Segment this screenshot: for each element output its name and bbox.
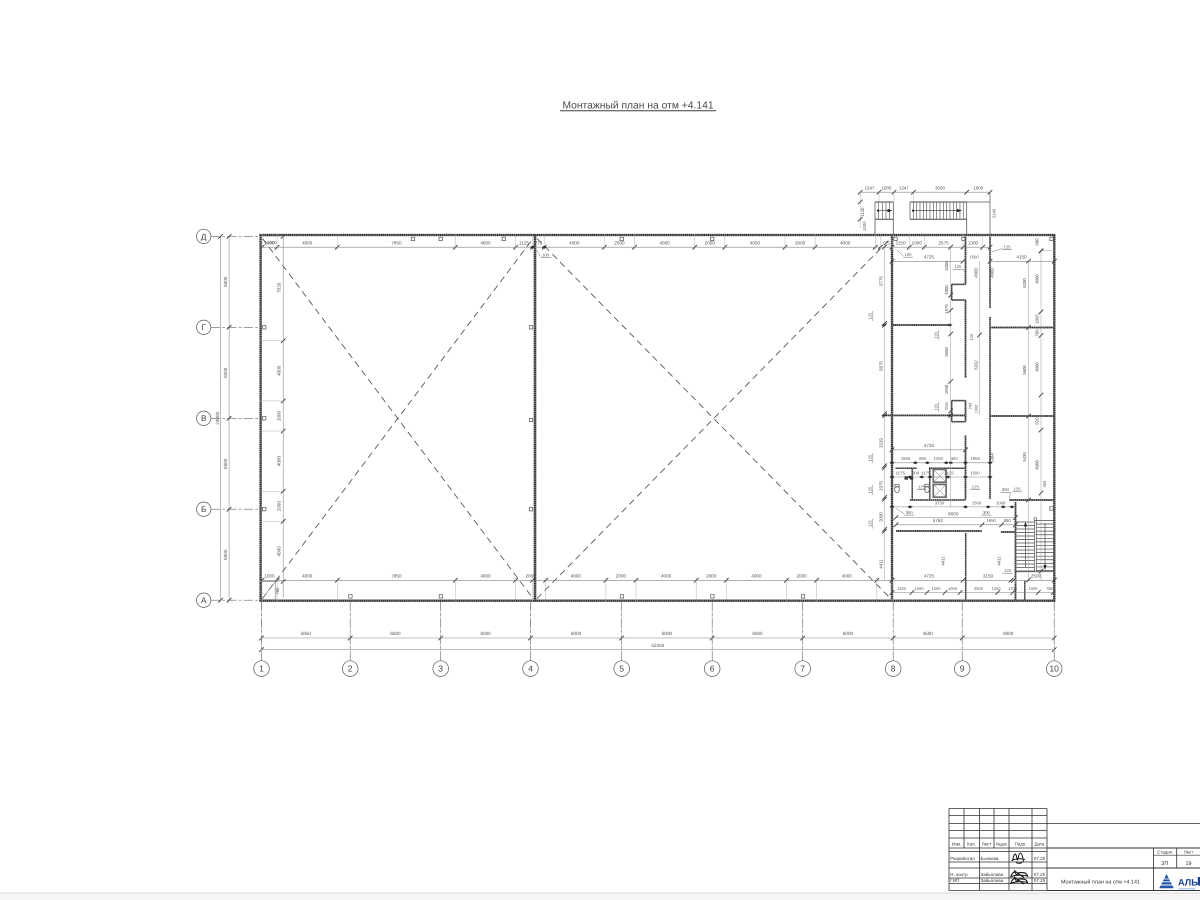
svg-text:Изм.: Изм.: [952, 841, 961, 846]
svg-text:4000: 4000: [840, 241, 851, 246]
svg-text:1000: 1000: [992, 586, 1002, 591]
svg-text:№док: №док: [996, 841, 1007, 846]
svg-text:4000: 4000: [1035, 460, 1040, 470]
svg-text:5850: 5850: [301, 631, 312, 636]
svg-text:3500: 3500: [935, 186, 945, 191]
svg-text:880: 880: [1004, 518, 1012, 523]
svg-text:7020: 7020: [277, 282, 282, 293]
svg-text:Д: Д: [201, 232, 207, 241]
svg-text:ГИП: ГИП: [950, 878, 959, 883]
svg-text:ЗП: ЗП: [1161, 861, 1168, 867]
svg-text:2000: 2000: [796, 574, 807, 579]
svg-text:Кол.: Кол.: [967, 841, 976, 846]
svg-text:5: 5: [619, 664, 624, 674]
svg-text:1320: 1320: [897, 586, 907, 591]
svg-text:775: 775: [535, 241, 543, 246]
svg-text:Разработал: Разработал: [950, 856, 975, 861]
svg-text:9: 9: [960, 664, 965, 674]
svg-text:3200: 3200: [944, 261, 949, 271]
svg-text:1000: 1000: [862, 221, 867, 231]
svg-text:5600: 5600: [1022, 365, 1027, 375]
svg-text:Лист: Лист: [1184, 850, 1193, 855]
svg-text:4000: 4000: [571, 574, 582, 579]
svg-text:4725: 4725: [924, 574, 935, 579]
svg-text:6000: 6000: [223, 458, 228, 469]
svg-text:125: 125: [868, 312, 873, 319]
svg-text:4725: 4725: [924, 443, 935, 448]
svg-text:Монтажный план на отм +4.141: Монтажный план на отм +4.141: [562, 100, 713, 111]
svg-text:2000: 2000: [525, 574, 536, 579]
svg-text:1000: 1000: [915, 586, 925, 591]
svg-text:125: 125: [1004, 245, 1012, 250]
svg-text:125: 125: [868, 519, 873, 526]
svg-text:4000: 4000: [1035, 274, 1040, 284]
svg-text:6000: 6000: [223, 549, 228, 560]
svg-text:2140: 2140: [991, 208, 996, 218]
svg-text:1000: 1000: [948, 586, 958, 591]
svg-text:4000: 4000: [277, 546, 282, 557]
svg-text:780: 780: [275, 587, 280, 595]
svg-text:1000: 1000: [912, 241, 923, 246]
svg-text:1125: 1125: [519, 241, 529, 246]
svg-text:4725: 4725: [924, 255, 935, 260]
svg-text:2000: 2000: [277, 410, 282, 421]
svg-text:Н. контр: Н. контр: [950, 872, 968, 877]
svg-text:8: 8: [891, 664, 896, 674]
svg-text:1300: 1300: [968, 241, 979, 246]
svg-text:300: 300: [906, 510, 914, 515]
svg-text:7850: 7850: [391, 241, 402, 246]
svg-text:А: А: [201, 596, 207, 605]
svg-text:Б: Б: [201, 505, 206, 514]
svg-text:2000: 2000: [878, 512, 883, 522]
svg-text:2575: 2575: [938, 241, 949, 246]
svg-text:6: 6: [710, 664, 715, 674]
svg-text:4411: 4411: [941, 556, 946, 566]
svg-text:800: 800: [919, 456, 927, 461]
svg-text:6000: 6000: [752, 631, 763, 636]
svg-text:1247: 1247: [899, 186, 909, 191]
svg-text:4000: 4000: [302, 241, 313, 246]
svg-text:1200: 1200: [932, 586, 942, 591]
svg-text:100: 100: [905, 252, 913, 257]
svg-text:Бычкова: Бычкова: [981, 856, 999, 861]
svg-text:4: 4: [528, 664, 533, 674]
svg-text:3339: 3339: [878, 438, 883, 448]
svg-text:1500: 1500: [972, 500, 982, 505]
svg-text:10: 10: [1049, 664, 1059, 674]
svg-text:359: 359: [1042, 480, 1047, 487]
svg-text:5775: 5775: [878, 276, 883, 286]
svg-text:1000: 1000: [975, 405, 979, 413]
svg-text:1550: 1550: [901, 456, 911, 461]
svg-text:2: 2: [348, 664, 353, 674]
svg-text:2500: 2500: [974, 586, 984, 591]
svg-text:5384: 5384: [990, 453, 995, 463]
svg-text:07.25: 07.25: [1034, 856, 1046, 861]
svg-text:243: 243: [968, 402, 973, 409]
svg-text:4411: 4411: [997, 556, 1002, 566]
svg-text:1175: 1175: [921, 470, 931, 475]
svg-text:Лист: Лист: [982, 841, 992, 846]
svg-text:125: 125: [1014, 487, 1022, 492]
svg-text:4000: 4000: [1035, 362, 1040, 372]
svg-text:Дата: Дата: [1035, 841, 1045, 846]
svg-text:4500: 4500: [923, 631, 934, 636]
svg-text:915: 915: [944, 402, 949, 410]
svg-text:1500: 1500: [969, 255, 979, 260]
svg-text:4000: 4000: [277, 365, 282, 376]
svg-text:6000: 6000: [1003, 631, 1014, 636]
svg-text:125: 125: [868, 486, 873, 493]
svg-text:300: 300: [983, 510, 991, 515]
svg-text:5762: 5762: [933, 518, 944, 523]
svg-text:6000: 6000: [480, 631, 491, 636]
svg-text:В: В: [201, 414, 207, 423]
svg-text:4000: 4000: [751, 574, 762, 579]
svg-text:1000: 1000: [996, 500, 1006, 505]
svg-text:1095: 1095: [1035, 314, 1040, 324]
svg-text:8000: 8000: [948, 511, 959, 516]
svg-text:6000: 6000: [223, 276, 228, 287]
svg-text:1000: 1000: [1029, 586, 1039, 591]
svg-text:700: 700: [1035, 329, 1040, 337]
svg-text:1575: 1575: [944, 304, 949, 314]
svg-text:4000: 4000: [659, 241, 670, 246]
svg-text:2000: 2000: [616, 574, 627, 579]
svg-text:5875: 5875: [878, 361, 883, 371]
svg-text:980: 980: [1035, 238, 1040, 246]
svg-text:4000: 4000: [302, 574, 313, 579]
svg-text:1500: 1500: [970, 470, 980, 475]
svg-text:1140: 1140: [860, 207, 865, 217]
svg-text:100: 100: [542, 253, 550, 258]
svg-text:1950: 1950: [987, 518, 997, 523]
svg-text:2000: 2000: [614, 241, 625, 246]
svg-text:6000: 6000: [843, 631, 854, 636]
svg-text:1950: 1950: [971, 456, 981, 461]
svg-text:07.25: 07.25: [1034, 872, 1046, 877]
svg-text:4000: 4000: [569, 241, 580, 246]
svg-text:5439: 5439: [1022, 452, 1027, 462]
svg-text:6000: 6000: [571, 631, 582, 636]
svg-text:125: 125: [918, 484, 926, 489]
svg-text:Стадия: Стадия: [1157, 850, 1172, 855]
svg-text:2000: 2000: [706, 574, 717, 579]
svg-text:780: 780: [1046, 586, 1053, 591]
svg-text:3750: 3750: [935, 500, 945, 505]
svg-text:1000: 1000: [882, 186, 892, 191]
svg-text:2000: 2000: [795, 241, 806, 246]
svg-text:6200: 6200: [1022, 278, 1027, 288]
svg-text:2500: 2500: [1031, 574, 1042, 579]
svg-text:300: 300: [951, 456, 959, 461]
svg-text:1950: 1950: [944, 384, 949, 394]
svg-text:4411: 4411: [878, 559, 883, 569]
svg-text:2125: 2125: [944, 470, 954, 475]
svg-text:Г: Г: [201, 323, 206, 332]
svg-text:24000: 24000: [215, 411, 220, 424]
svg-text:800: 800: [912, 470, 920, 475]
svg-text:3150: 3150: [983, 574, 994, 579]
svg-text:АЛЬ: АЛЬ: [1178, 878, 1198, 888]
svg-text:125: 125: [955, 264, 962, 269]
svg-text:строительная: строительная: [1178, 888, 1196, 891]
svg-text:6000: 6000: [223, 367, 228, 378]
svg-text:125: 125: [934, 331, 939, 338]
svg-text:2000: 2000: [277, 501, 282, 512]
svg-text:1: 1: [259, 664, 264, 674]
svg-text:4000: 4000: [842, 574, 853, 579]
svg-text:Забьялова: Забьялова: [981, 872, 1004, 877]
svg-text:3550: 3550: [944, 347, 949, 357]
svg-text:1975: 1975: [878, 481, 883, 491]
svg-text:1250: 1250: [934, 456, 944, 461]
svg-text:125: 125: [868, 454, 873, 461]
svg-text:4000: 4000: [750, 241, 761, 246]
svg-text:1000: 1000: [264, 574, 275, 579]
svg-text:7850: 7850: [391, 574, 402, 579]
svg-text:4000: 4000: [480, 241, 491, 246]
svg-text:4000: 4000: [661, 574, 672, 579]
svg-text:4900: 4900: [990, 268, 995, 278]
svg-text:4000: 4000: [480, 574, 491, 579]
svg-text:125: 125: [972, 484, 980, 489]
svg-text:4150: 4150: [1016, 255, 1027, 260]
svg-text:6000: 6000: [662, 631, 673, 636]
svg-text:7: 7: [800, 664, 805, 674]
svg-text:6000: 6000: [390, 631, 401, 636]
svg-text:1175: 1175: [896, 470, 906, 475]
svg-text:1000: 1000: [267, 240, 277, 245]
svg-text:2000: 2000: [705, 241, 716, 246]
svg-text:52350: 52350: [651, 643, 664, 648]
svg-text:1247: 1247: [865, 186, 875, 191]
svg-text:4900: 4900: [973, 268, 978, 278]
svg-text:3: 3: [438, 664, 443, 674]
svg-text:Забьялова: Забьялова: [981, 878, 1004, 883]
svg-text:1600: 1600: [973, 186, 983, 191]
svg-text:6332: 6332: [973, 360, 978, 370]
svg-text:1150: 1150: [896, 241, 906, 246]
svg-text:Подп.: Подп.: [1015, 841, 1027, 846]
svg-text:125: 125: [969, 333, 974, 340]
svg-text:19: 19: [1186, 861, 1192, 867]
svg-text:07.25: 07.25: [1034, 878, 1046, 883]
svg-text:1700: 1700: [1008, 586, 1018, 591]
svg-text:125: 125: [1004, 568, 1012, 573]
svg-text:820: 820: [1035, 417, 1040, 425]
svg-text:125: 125: [934, 403, 939, 410]
svg-text:1000: 1000: [944, 285, 949, 295]
svg-text:350: 350: [1002, 487, 1010, 492]
svg-text:4000: 4000: [277, 456, 282, 467]
svg-text:Монтажный план на отм +4.141: Монтажный план на отм +4.141: [1061, 880, 1140, 886]
